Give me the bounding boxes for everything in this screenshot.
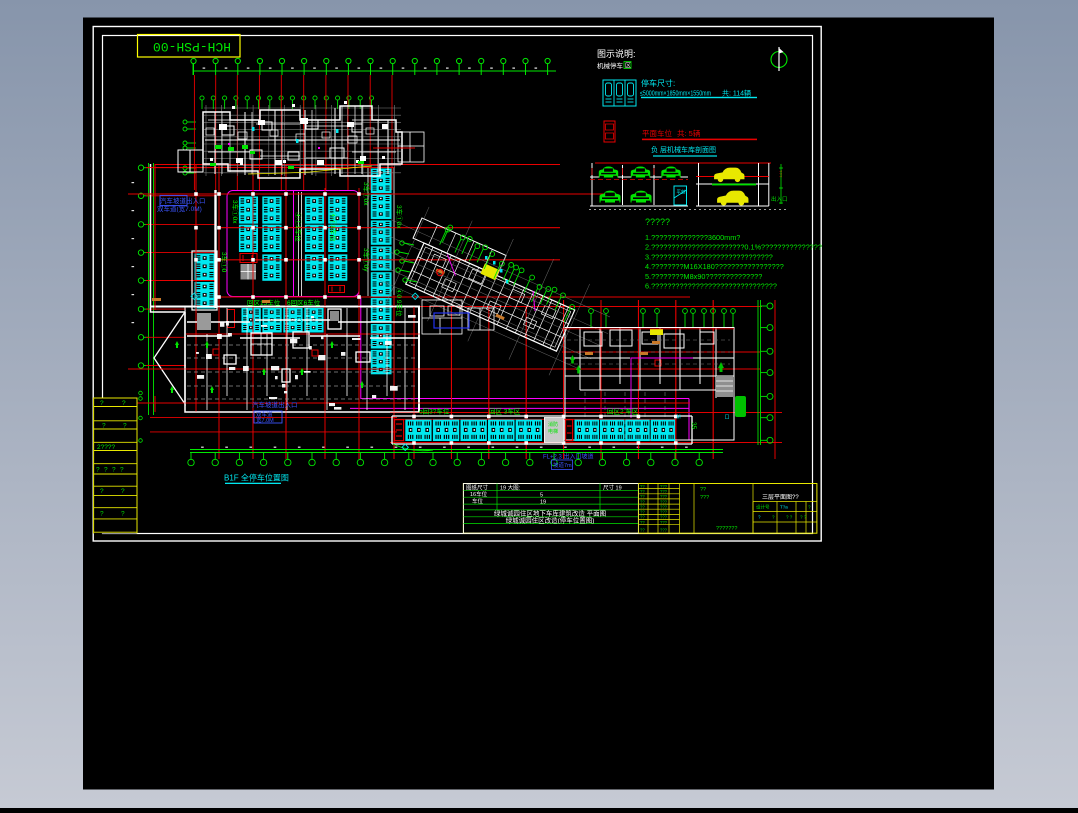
svg-text:?: ? — [112, 467, 116, 474]
svg-text:停车尺寸:: 停车尺寸: — [641, 78, 675, 88]
svg-text:3车①0x: 3车①0x — [362, 182, 371, 206]
svg-text:19: 19 — [540, 500, 546, 506]
svg-text:图纸尺寸: 图纸尺寸 — [466, 484, 489, 492]
svg-text:?: ? — [121, 511, 125, 518]
svg-text:?: ? — [121, 488, 125, 495]
svg-text:???: ??? — [778, 170, 783, 178]
svg-text:≤5000mm×1850mm×1550mm: ≤5000mm×1850mm×1550mm — [640, 91, 711, 98]
svg-text:出入口: 出入口 — [771, 195, 788, 203]
svg-text:?: ? — [96, 467, 100, 474]
svg-text:电梯: 电梯 — [548, 428, 558, 435]
svg-text:?: ? — [120, 467, 124, 474]
svg-text:共: 5辆: 共: 5辆 — [677, 128, 701, 138]
svg-text:回区 3车区: 回区 3车区 — [489, 407, 521, 416]
svg-text:3车①0x: 3车①0x — [231, 200, 240, 224]
svg-text:?: ? — [123, 422, 127, 429]
svg-text:o回3?车位: o回3?车位 — [419, 407, 450, 416]
svg-text:??: ?? — [640, 528, 645, 533]
svg-text:区: 区 — [625, 63, 631, 70]
svg-text:HCH-PSH-00: HCH-PSH-00 — [153, 39, 231, 54]
svg-text:3.????????????????????????????: 3.?????????????????????????????? — [645, 252, 773, 261]
svg-text:④0 9车位: ④0 9车位 — [395, 288, 404, 317]
svg-text:3车①0: 3车①0 — [220, 252, 229, 273]
svg-text:车位: 车位 — [472, 497, 484, 505]
svg-text:图示说明:: 图示说明: — [597, 48, 636, 59]
svg-text:? ?: ? ? — [800, 515, 807, 520]
svg-text:6回区6车位: 6回区6车位 — [287, 298, 321, 307]
svg-text:设计号: 设计号 — [756, 504, 770, 511]
svg-text:???: ??? — [660, 520, 668, 525]
svg-text:?: ? — [104, 467, 108, 474]
svg-text:口: 口 — [725, 415, 730, 421]
svg-text:三层平面图??: 三层平面图?? — [762, 494, 799, 501]
svg-text:19 大图:: 19 大图: — [500, 484, 521, 492]
svg-text:负 层机械车库剖面图: 负 层机械车库剖面图 — [651, 145, 716, 154]
svg-text:???: ??? — [660, 528, 668, 533]
svg-text:宽7.0M: 宽7.0M — [256, 416, 274, 424]
svg-text:绿城诚园住区改造(停车位置图): 绿城诚园住区改造(停车位置图) — [506, 516, 595, 525]
svg-text:?????: ????? — [645, 217, 670, 227]
svg-text:T?a: T?a — [780, 505, 788, 510]
svg-text:平剖: 平剖 — [677, 189, 686, 196]
svg-text:2????: 2???? — [97, 444, 115, 451]
svg-text:机械停车: 机械停车 — [597, 61, 624, 70]
svg-text:??: ?? — [640, 520, 645, 525]
svg-text:?: ? — [100, 511, 104, 518]
svg-text:回区2 车区: 回区2 车区 — [607, 407, 639, 416]
svg-text:5: 5 — [540, 493, 543, 499]
svg-text:1.??????????????3600mm?: 1.??????????????3600mm? — [645, 233, 740, 242]
svg-text:消防: 消防 — [548, 421, 558, 428]
svg-text:?: ? — [122, 400, 126, 407]
svg-text:共: 114辆: 共: 114辆 — [722, 89, 751, 98]
svg-text:?: ? — [102, 422, 106, 429]
svg-text:3车①0x: 3车①0x — [395, 205, 404, 229]
svg-text:6.????????????????????????????: 6.??????????????????????????????? — [645, 282, 777, 291]
svg-text:FL+2.3 出入口坡道: FL+2.3 出入口坡道 — [543, 453, 594, 461]
svg-text:3车①0y: 3车①0y — [362, 248, 371, 272]
svg-text:16车位: 16车位 — [470, 490, 488, 498]
svg-text:B1F 全停车位置图: B1F 全停车位置图 — [224, 473, 289, 483]
svg-text:④①1车位: ④①1车位 — [329, 212, 338, 242]
svg-text:4.????????M16X180?????????????: 4.????????M16X180????????????????? — [645, 262, 784, 271]
svg-text:5.????????M8x90??????????????: 5.????????M8x90?????????????? — [645, 272, 762, 281]
svg-text:??: ?? — [700, 487, 706, 493]
svg-text:④①1车位: ④①1车位 — [294, 212, 303, 242]
svg-text:35: 35 — [690, 422, 697, 430]
svg-text:尺寸 19: 尺寸 19 — [603, 484, 622, 492]
svg-text:绿城诚园住区地下车库建筑改造 平面图: 绿城诚园住区地下车库建筑改造 平面图 — [494, 509, 606, 518]
svg-text:? ?: ? ? — [786, 515, 793, 520]
svg-text:平面车位: 平面车位 — [642, 128, 672, 138]
svg-text:双车道(宽7.0M): 双车道(宽7.0M) — [157, 204, 202, 213]
svg-text:汽车坡道出入口: 汽车坡道出入口 — [160, 196, 206, 205]
svg-text:坡道7m: 坡道7m — [553, 461, 572, 469]
svg-text:?: ? — [100, 400, 104, 407]
svg-text:???: ??? — [700, 495, 709, 501]
svg-text:?: ? — [100, 488, 104, 495]
svg-text:汽车坡道出入口: 汽车坡道出入口 — [252, 400, 298, 409]
svg-text:2.???????????????????????0.1%?: 2.???????????????????????0.1%???????????… — [645, 243, 822, 252]
svg-text:M: M — [677, 415, 681, 421]
svg-text:???????: ??????? — [716, 526, 737, 532]
